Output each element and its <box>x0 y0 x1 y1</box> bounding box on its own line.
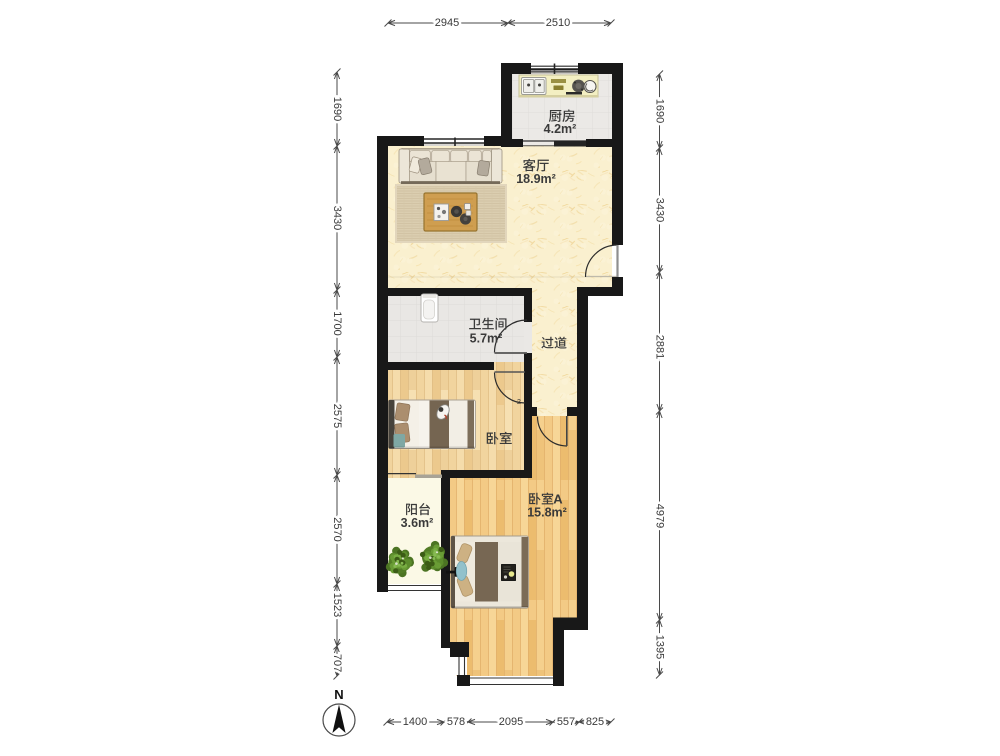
svg-text:4979: 4979 <box>654 504 666 528</box>
svg-text:15.8m²: 15.8m² <box>527 505 567 519</box>
svg-text:18.9m²: 18.9m² <box>516 172 556 186</box>
svg-text:1523: 1523 <box>331 593 343 617</box>
svg-text:1690: 1690 <box>331 97 343 121</box>
svg-text:1700: 1700 <box>331 311 343 335</box>
svg-text:2881: 2881 <box>654 335 666 359</box>
svg-text:3430: 3430 <box>331 206 343 230</box>
svg-text:3.6m²: 3.6m² <box>401 516 434 530</box>
svg-text:2510: 2510 <box>546 17 570 29</box>
svg-text:557: 557 <box>557 716 575 728</box>
svg-text:707: 707 <box>331 654 343 672</box>
svg-text:1690: 1690 <box>654 99 666 123</box>
svg-text:2095: 2095 <box>499 716 523 728</box>
svg-text:1395: 1395 <box>654 635 666 659</box>
svg-text:578: 578 <box>447 716 465 728</box>
svg-text:2570: 2570 <box>331 517 343 541</box>
svg-text:2945: 2945 <box>435 17 459 29</box>
svg-text:1400: 1400 <box>403 716 427 728</box>
svg-text:5.7m²: 5.7m² <box>470 331 503 345</box>
svg-text:3430: 3430 <box>654 198 666 222</box>
svg-text:2: 2 <box>517 399 521 406</box>
svg-text:4.2m²: 4.2m² <box>544 122 577 136</box>
svg-text:A: A <box>553 492 563 507</box>
svg-text:2575: 2575 <box>331 404 343 428</box>
svg-text:825: 825 <box>586 716 604 728</box>
svg-text:N: N <box>334 687 343 702</box>
